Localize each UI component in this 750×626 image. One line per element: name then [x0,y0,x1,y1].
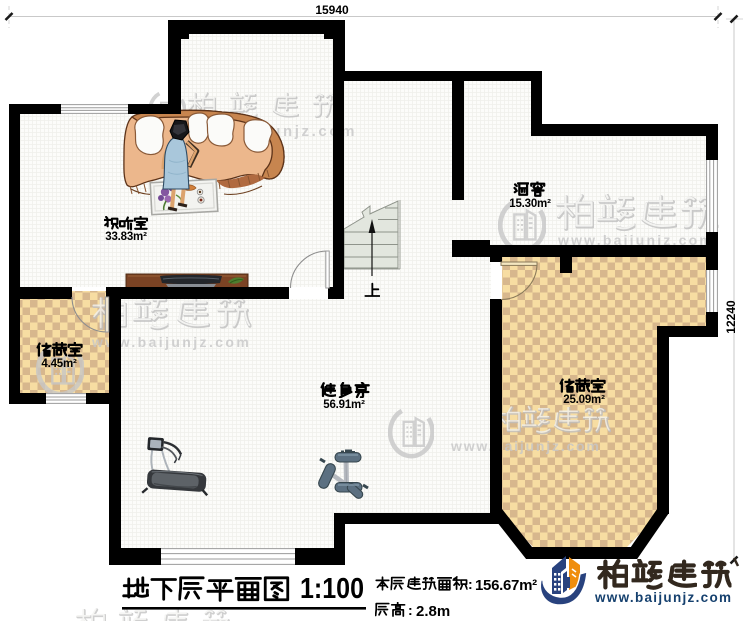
svg-text:2.8m: 2.8m [416,603,450,620]
svg-text:12240: 12240 [724,300,738,334]
svg-text:33.83m²: 33.83m² [105,231,147,243]
svg-text:15.30m²: 15.30m² [509,198,551,210]
svg-text:156.67m²: 156.67m² [475,577,537,594]
svg-text:15940: 15940 [315,3,349,17]
svg-text:25.09m²: 25.09m² [563,394,605,406]
svg-text:www.baijunjz.com: www.baijunjz.com [594,590,732,605]
svg-text::: : [468,576,473,592]
svg-text:4.45m²: 4.45m² [41,358,77,370]
svg-text:1:100: 1:100 [300,573,364,605]
svg-text::: : [408,602,413,618]
svg-text:56.91m²: 56.91m² [323,399,365,411]
svg-text:www.baijunjz.com: www.baijunjz.com [450,438,601,454]
